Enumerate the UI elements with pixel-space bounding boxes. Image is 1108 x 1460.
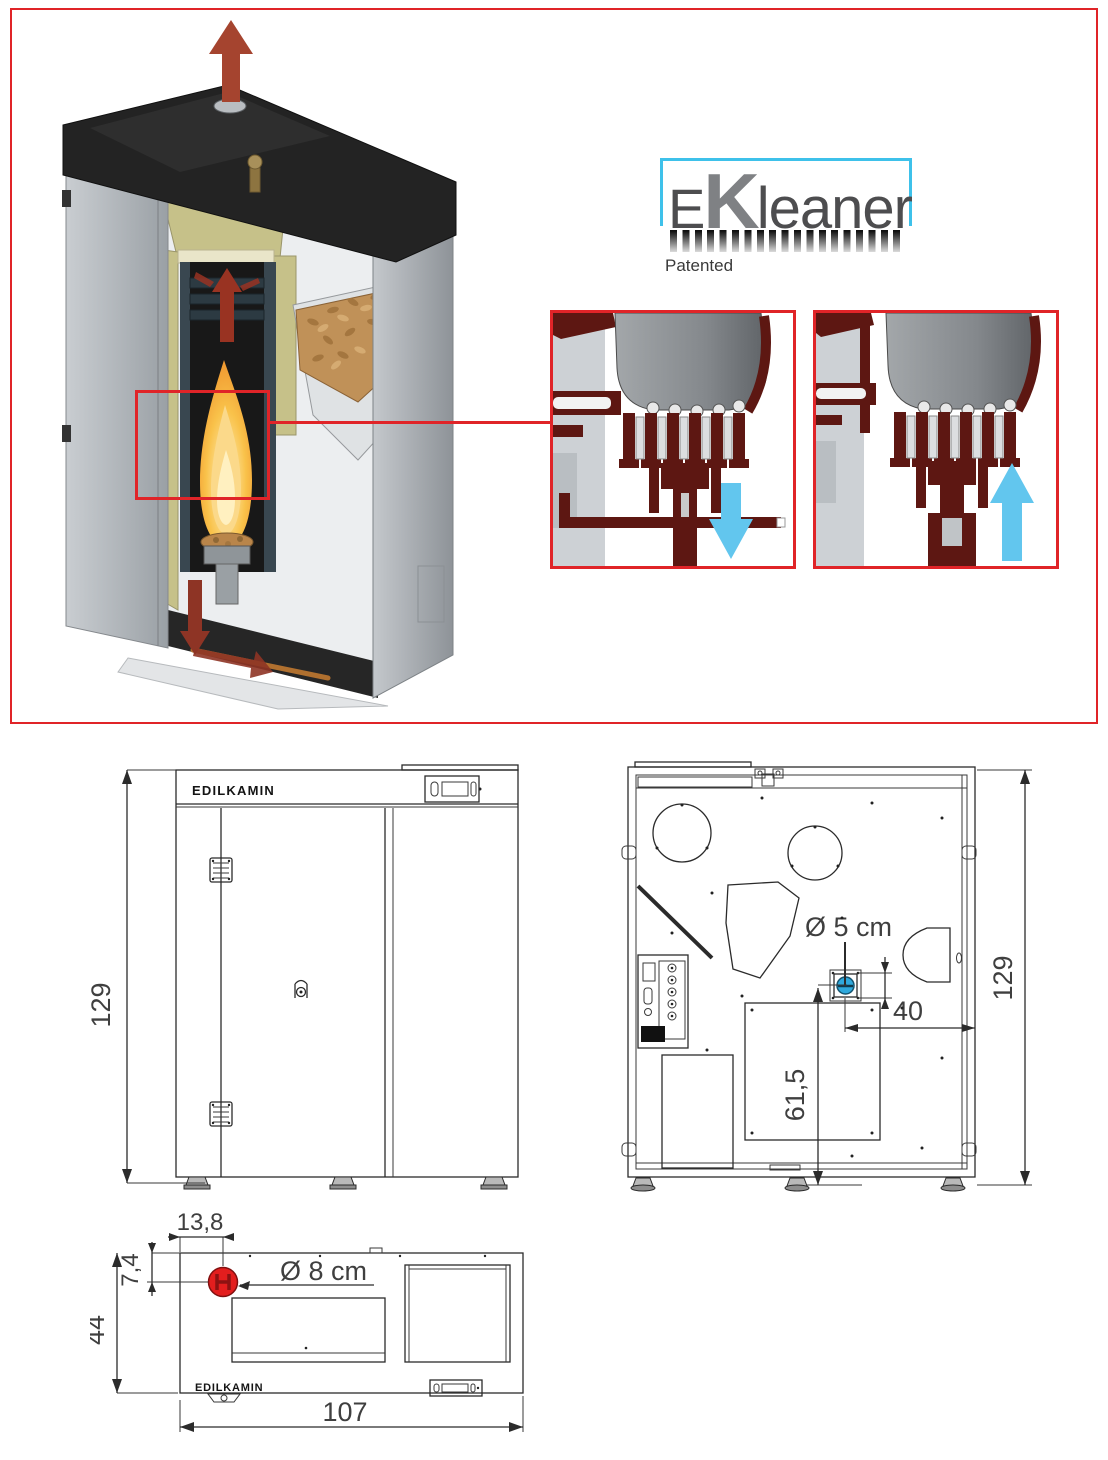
flue-outlet — [209, 1268, 238, 1297]
cleaner-piston-up — [916, 461, 988, 566]
safety-valve — [248, 155, 262, 192]
detail-view-cleaner-down — [550, 310, 796, 569]
fan-opening-left — [653, 804, 711, 863]
callout-connector-line — [267, 421, 550, 424]
flue-offset-x-dimension: 13,8 — [168, 1209, 234, 1266]
port-offset-right-label: 40 — [893, 996, 923, 1026]
front-feet — [184, 1177, 507, 1189]
front-control-panel — [425, 776, 482, 802]
flue-diameter-label: Ø 8 cm — [280, 1256, 367, 1286]
back-height-dimension: 129 — [977, 770, 1032, 1185]
port-diameter-label: Ø 5 cm — [805, 912, 892, 942]
electrical-panel — [638, 955, 688, 1048]
port-offset-right-dimension: 40 — [845, 996, 975, 1032]
width-dimension: 107 — [180, 1396, 523, 1432]
up-arrow-icon — [990, 463, 1034, 561]
back-view-drawing: Ø 5 cm 40 61,5 — [612, 758, 1072, 1200]
detail-view-cleaner-up — [813, 310, 1059, 569]
patented-label: Patented — [665, 256, 733, 276]
depth-label: 44 — [90, 1315, 110, 1345]
logo-comb-pattern — [670, 230, 904, 252]
flue-offset-y-label: 7,4 — [117, 1253, 144, 1286]
front-height-dimension: 129 — [90, 770, 205, 1183]
logo-bracket-left — [660, 158, 663, 226]
front-height-label: 129 — [90, 982, 116, 1027]
front-view-drawing: EDILKAMIN — [90, 762, 535, 1210]
front-brand-logo: EDILKAMIN — [192, 783, 275, 798]
back-height-label: 129 — [988, 955, 1018, 1000]
width-label: 107 — [322, 1397, 367, 1427]
flue-diameter-callout: Ø 8 cm — [238, 1256, 374, 1290]
top-handle — [208, 1394, 240, 1402]
ekleaner-logo: EKleaner Patented — [660, 152, 918, 280]
port-offset-bottom-label: 61,5 — [780, 1069, 810, 1122]
door-handle — [295, 981, 307, 999]
port-offset-bottom-dimension: 61,5 — [780, 985, 862, 1185]
cleaner-piston-down — [649, 463, 721, 566]
access-plate — [726, 882, 799, 978]
top-brand-logo: EDILKAMIN — [195, 1382, 263, 1394]
cleaning-comb — [890, 412, 1020, 467]
callout-rectangle — [135, 390, 270, 500]
front-body — [176, 765, 518, 1177]
back-feet — [631, 1178, 965, 1191]
fan-opening-center — [788, 826, 842, 881]
cleaning-comb — [619, 413, 749, 468]
hero-panel: EKleaner Patented — [10, 8, 1098, 724]
boiler-cutaway-illustration — [28, 10, 458, 710]
page: EKleaner Patented — [0, 0, 1108, 1460]
top-compartment-right — [405, 1265, 510, 1362]
rear-panel — [745, 1003, 880, 1140]
rear-panel-lower-left — [662, 1055, 733, 1168]
top-compartment-wide — [232, 1298, 385, 1362]
diagonal-brace — [638, 886, 712, 958]
port-size-dimension — [858, 957, 892, 1009]
top-view-drawing: Ø 8 cm EDILKAMIN — [90, 1208, 535, 1460]
flue-offset-x-label: 13,8 — [177, 1209, 224, 1236]
side-opening — [903, 928, 950, 982]
